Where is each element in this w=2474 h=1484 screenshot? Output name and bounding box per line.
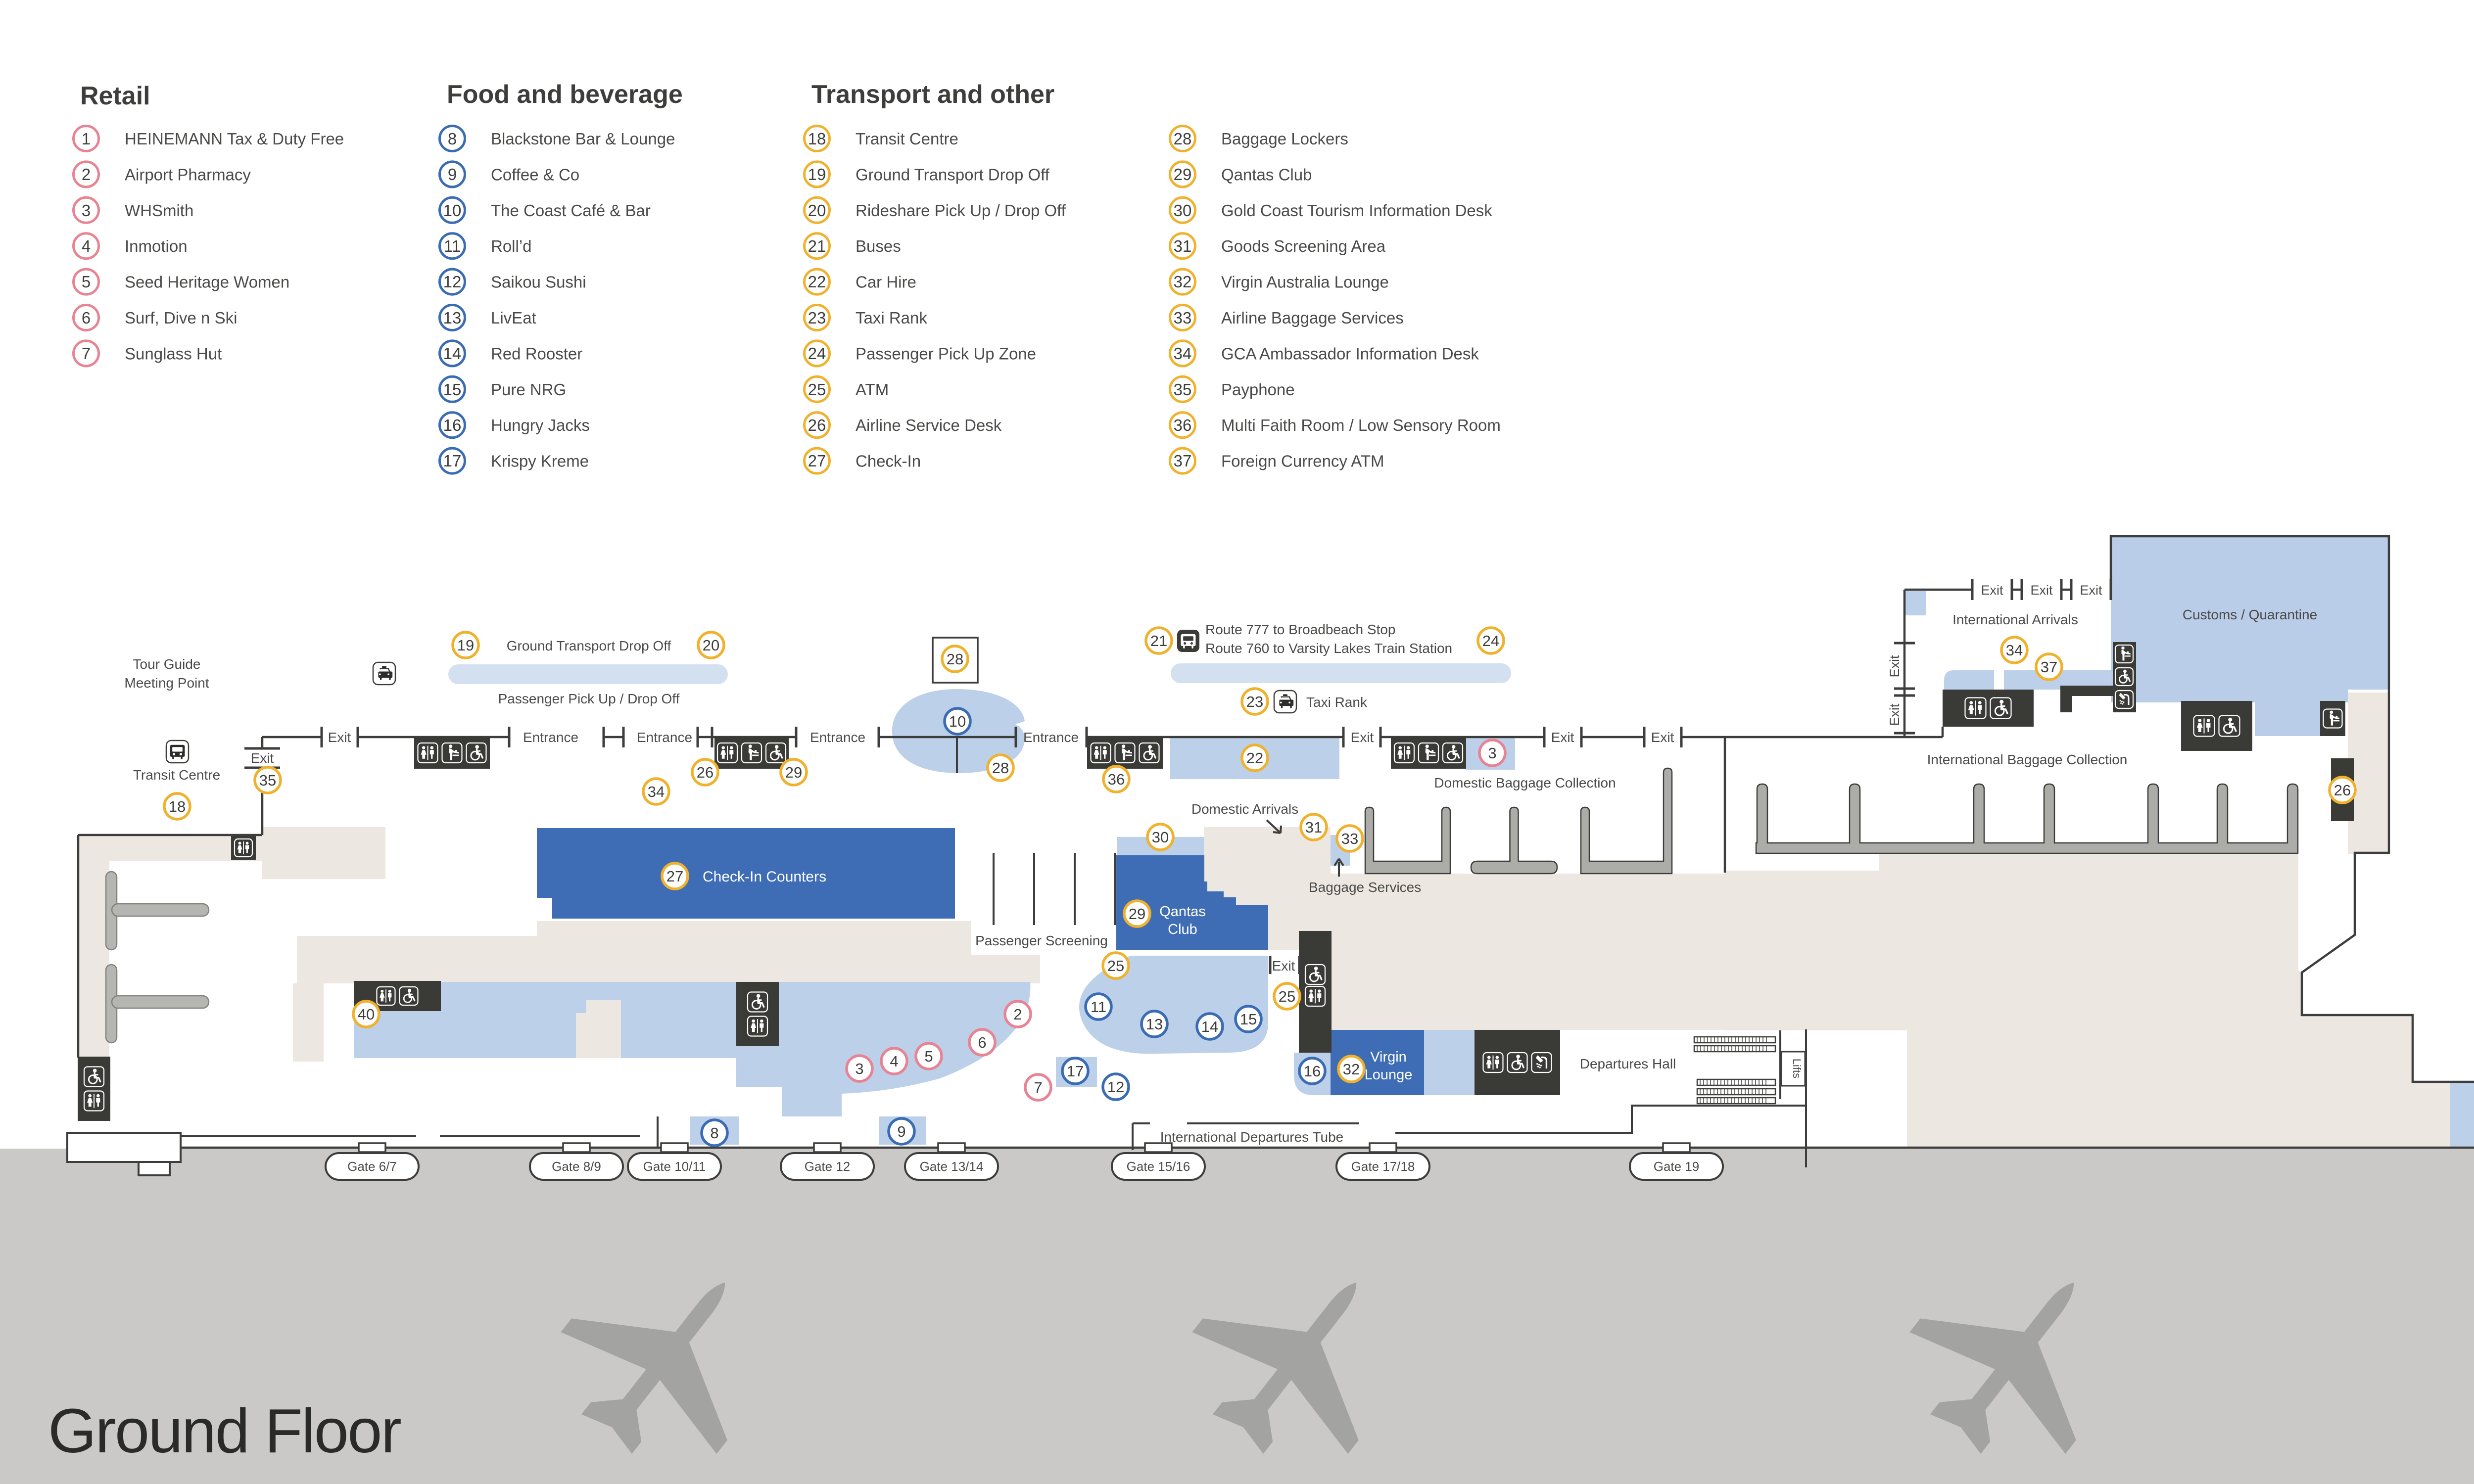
svg-text:10: 10 (949, 713, 966, 730)
svg-text:Surf, Dive n Ski: Surf, Dive n Ski (125, 309, 237, 327)
svg-text:Tour Guide: Tour Guide (133, 656, 201, 672)
svg-text:32: 32 (1174, 273, 1192, 291)
svg-text:Inmotion: Inmotion (125, 237, 188, 255)
svg-text:Domestic Arrivals: Domestic Arrivals (1191, 801, 1298, 817)
svg-text:Gate 8/9: Gate 8/9 (552, 1159, 601, 1174)
svg-text:26: 26 (808, 416, 826, 434)
svg-text:Roll’d: Roll’d (491, 237, 532, 255)
svg-text:Pure NRG: Pure NRG (491, 380, 566, 399)
svg-text:Sunglass Hut: Sunglass Hut (125, 344, 222, 363)
svg-text:15: 15 (1240, 1011, 1257, 1028)
svg-text:16: 16 (443, 416, 462, 434)
svg-text:Virgin Australia Lounge: Virgin Australia Lounge (1221, 273, 1389, 291)
svg-text:Payphone: Payphone (1221, 380, 1295, 399)
svg-text:7: 7 (1034, 1079, 1042, 1096)
svg-text:34: 34 (1174, 344, 1192, 363)
svg-text:1: 1 (82, 130, 91, 148)
svg-text:22: 22 (808, 273, 826, 291)
svg-text:12: 12 (1107, 1078, 1124, 1096)
svg-text:Gate 12: Gate 12 (805, 1159, 851, 1174)
svg-text:25: 25 (1279, 988, 1295, 1005)
svg-text:Airport Pharmacy: Airport Pharmacy (125, 165, 251, 184)
svg-text:GCA Ambassador Information Des: GCA Ambassador Information Desk (1221, 344, 1479, 363)
svg-text:22: 22 (1246, 749, 1263, 767)
svg-text:11: 11 (444, 237, 461, 255)
svg-text:24: 24 (808, 344, 826, 363)
svg-text:Ground Transport Drop Off: Ground Transport Drop Off (856, 165, 1050, 184)
svg-text:6: 6 (82, 309, 91, 327)
svg-text:Check-In: Check-In (856, 452, 921, 470)
svg-text:Exit: Exit (1981, 583, 2003, 598)
svg-text:Baggage Services: Baggage Services (1309, 880, 1421, 895)
svg-text:Exit: Exit (1887, 655, 1902, 678)
svg-text:8: 8 (448, 130, 457, 148)
svg-text:5: 5 (82, 273, 91, 291)
svg-text:Gate 10/11: Gate 10/11 (643, 1159, 706, 1174)
svg-text:25: 25 (1107, 957, 1124, 974)
svg-text:36: 36 (1174, 416, 1192, 434)
svg-text:Exit: Exit (1351, 730, 1374, 745)
svg-text:30: 30 (1174, 201, 1192, 220)
svg-text:Gate 6/7: Gate 6/7 (347, 1159, 397, 1174)
svg-text:16: 16 (1304, 1063, 1321, 1080)
svg-text:28: 28 (992, 759, 1009, 777)
svg-text:Ground Transport Drop Off: Ground Transport Drop Off (507, 638, 671, 653)
svg-text:23: 23 (1246, 693, 1263, 710)
svg-text:28: 28 (1174, 130, 1192, 148)
svg-text:Coffee & Co: Coffee & Co (491, 165, 579, 184)
svg-text:17: 17 (1067, 1063, 1084, 1080)
svg-text:26: 26 (2334, 782, 2351, 799)
svg-text:10: 10 (443, 201, 462, 220)
svg-text:Exit: Exit (328, 730, 351, 745)
svg-text:Entrance: Entrance (637, 730, 692, 745)
svg-text:Airline Service Desk: Airline Service Desk (856, 416, 1002, 434)
svg-text:3: 3 (82, 201, 91, 220)
svg-text:33: 33 (1341, 830, 1358, 847)
svg-text:Red Rooster: Red Rooster (491, 344, 582, 363)
svg-text:Virgin: Virgin (1370, 1049, 1407, 1065)
svg-text:Route 777 to Broadbeach Stop: Route 777 to Broadbeach Stop (1205, 622, 1396, 637)
svg-text:Exit: Exit (251, 750, 274, 766)
svg-text:19: 19 (808, 165, 826, 184)
svg-text:4: 4 (890, 1053, 898, 1070)
svg-text:Saikou Sushi: Saikou Sushi (491, 273, 586, 291)
svg-text:5: 5 (924, 1048, 933, 1065)
svg-text:ATM: ATM (856, 380, 889, 399)
svg-text:25: 25 (808, 380, 826, 399)
svg-text:32: 32 (1343, 1061, 1360, 1078)
svg-text:Baggage Lockers: Baggage Lockers (1221, 130, 1348, 148)
svg-text:4: 4 (82, 237, 91, 255)
svg-text:12: 12 (443, 273, 462, 291)
svg-text:Food and beverage: Food and beverage (447, 80, 683, 109)
svg-text:Exit: Exit (1651, 730, 1674, 745)
svg-text:29: 29 (785, 764, 802, 781)
svg-text:2: 2 (82, 165, 91, 184)
svg-text:20: 20 (703, 637, 719, 654)
svg-text:26: 26 (697, 764, 714, 781)
svg-text:WHSmith: WHSmith (125, 201, 193, 220)
svg-text:Ground Floor: Ground Floor (48, 1396, 401, 1466)
svg-text:24: 24 (1482, 632, 1499, 649)
svg-text:Transit Centre: Transit Centre (133, 767, 220, 783)
svg-text:14: 14 (443, 344, 462, 363)
svg-text:Departures Hall: Departures Hall (1580, 1056, 1676, 1071)
svg-text:20: 20 (808, 201, 826, 220)
svg-text:Domestic Baggage Collection: Domestic Baggage Collection (1434, 775, 1616, 790)
svg-text:Lounge: Lounge (1365, 1067, 1413, 1083)
svg-text:31: 31 (1305, 819, 1322, 836)
svg-text:36: 36 (1108, 771, 1125, 788)
svg-text:Multi Faith Room / Low Sensory: Multi Faith Room / Low Sensory Room (1221, 416, 1501, 434)
svg-text:Retail: Retail (80, 82, 150, 110)
svg-text:13: 13 (1146, 1016, 1163, 1033)
svg-text:29: 29 (1129, 905, 1145, 923)
svg-text:Car Hire: Car Hire (856, 273, 916, 291)
svg-text:2: 2 (1013, 1006, 1022, 1023)
svg-text:International Departures Tube: International Departures Tube (1160, 1129, 1343, 1145)
svg-text:International Baggage Collecti: International Baggage Collection (1927, 752, 2128, 767)
svg-text:34: 34 (648, 783, 665, 800)
svg-text:Buses: Buses (856, 237, 901, 255)
svg-text:Entrance: Entrance (523, 730, 578, 745)
svg-text:Lifts: Lifts (1791, 1059, 1803, 1078)
svg-text:27: 27 (666, 868, 683, 885)
svg-text:Passenger Pick Up / Drop Off: Passenger Pick Up / Drop Off (498, 691, 680, 706)
svg-text:6: 6 (978, 1034, 986, 1051)
svg-text:33: 33 (1174, 309, 1192, 327)
svg-text:8: 8 (710, 1124, 718, 1142)
svg-text:Airline Baggage Services: Airline Baggage Services (1221, 309, 1404, 327)
svg-text:LivEat: LivEat (491, 309, 536, 327)
svg-text:30: 30 (1152, 829, 1169, 846)
svg-text:Hungry Jacks: Hungry Jacks (491, 416, 590, 434)
svg-text:31: 31 (1174, 237, 1192, 255)
svg-text:Entrance: Entrance (810, 730, 865, 745)
svg-text:Blackstone Bar & Lounge: Blackstone Bar & Lounge (491, 130, 675, 148)
svg-text:Goods Screening Area: Goods Screening Area (1221, 237, 1386, 255)
svg-text:3: 3 (855, 1060, 863, 1077)
svg-text:Entrance: Entrance (1023, 730, 1079, 745)
svg-text:23: 23 (808, 309, 826, 327)
svg-text:Qantas: Qantas (1159, 904, 1206, 920)
svg-text:40: 40 (358, 1006, 375, 1023)
svg-text:11: 11 (1091, 998, 1106, 1016)
svg-text:14: 14 (1201, 1018, 1218, 1035)
svg-text:15: 15 (443, 380, 462, 399)
svg-text:Qantas Club: Qantas Club (1221, 165, 1312, 184)
svg-text:18: 18 (169, 798, 186, 815)
svg-text:Gate 17/18: Gate 17/18 (1351, 1159, 1415, 1174)
svg-text:Rideshare Pick Up / Drop Off: Rideshare Pick Up / Drop Off (856, 201, 1066, 220)
svg-text:Exit: Exit (1551, 730, 1574, 745)
svg-text:Transport and other: Transport and other (811, 80, 1054, 109)
svg-text:HEINEMANN Tax & Duty Free: HEINEMANN Tax & Duty Free (125, 130, 344, 148)
svg-text:13: 13 (443, 309, 462, 327)
svg-text:18: 18 (808, 130, 826, 148)
svg-text:9: 9 (448, 165, 457, 184)
svg-text:Customs / Quarantine: Customs / Quarantine (2183, 607, 2317, 622)
svg-text:35: 35 (259, 772, 276, 789)
svg-text:19: 19 (457, 637, 474, 654)
svg-text:Seed Heritage Women: Seed Heritage Women (125, 273, 289, 291)
svg-text:35: 35 (1174, 380, 1192, 399)
svg-text:Exit: Exit (1887, 703, 1902, 726)
svg-text:9: 9 (897, 1123, 905, 1140)
svg-text:Transit Centre: Transit Centre (856, 130, 958, 148)
svg-text:Club: Club (1168, 922, 1197, 937)
svg-text:International Arrivals: International Arrivals (1952, 612, 2078, 627)
svg-text:Gate 13/14: Gate 13/14 (920, 1159, 984, 1174)
svg-text:Gate 15/16: Gate 15/16 (1127, 1159, 1190, 1174)
svg-text:Foreign Currency ATM: Foreign Currency ATM (1221, 452, 1384, 470)
svg-text:34: 34 (2006, 642, 2023, 659)
svg-text:Exit: Exit (1272, 958, 1295, 974)
svg-text:Passenger Pick Up Zone: Passenger Pick Up Zone (856, 344, 1036, 363)
svg-text:Exit: Exit (2030, 583, 2053, 598)
svg-text:21: 21 (808, 237, 826, 255)
svg-text:Gold Coast Tourism Information: Gold Coast Tourism Information Desk (1221, 201, 1492, 220)
svg-text:17: 17 (443, 452, 462, 470)
svg-text:27: 27 (808, 452, 826, 470)
svg-text:Check-In Counters: Check-In Counters (703, 869, 826, 885)
svg-text:Krispy Kreme: Krispy Kreme (491, 452, 589, 470)
svg-text:7: 7 (82, 344, 91, 363)
svg-text:Route 760 to Varsity Lakes Tra: Route 760 to Varsity Lakes Train Station (1205, 641, 1452, 656)
svg-text:37: 37 (2041, 658, 2057, 676)
svg-text:Taxi Rank: Taxi Rank (856, 309, 927, 327)
svg-text:3: 3 (1488, 744, 1496, 762)
svg-text:The Coast Café & Bar: The Coast Café & Bar (491, 201, 651, 220)
svg-text:Taxi Rank: Taxi Rank (1306, 695, 1368, 710)
svg-text:Meeting Point: Meeting Point (124, 675, 209, 691)
svg-text:Exit: Exit (2080, 583, 2102, 598)
svg-text:Passenger Screening: Passenger Screening (975, 933, 1108, 948)
svg-text:37: 37 (1174, 452, 1192, 470)
svg-text:21: 21 (1150, 632, 1167, 649)
svg-text:29: 29 (1174, 165, 1192, 184)
svg-text:Gate 19: Gate 19 (1654, 1159, 1700, 1174)
svg-text:28: 28 (947, 650, 963, 668)
